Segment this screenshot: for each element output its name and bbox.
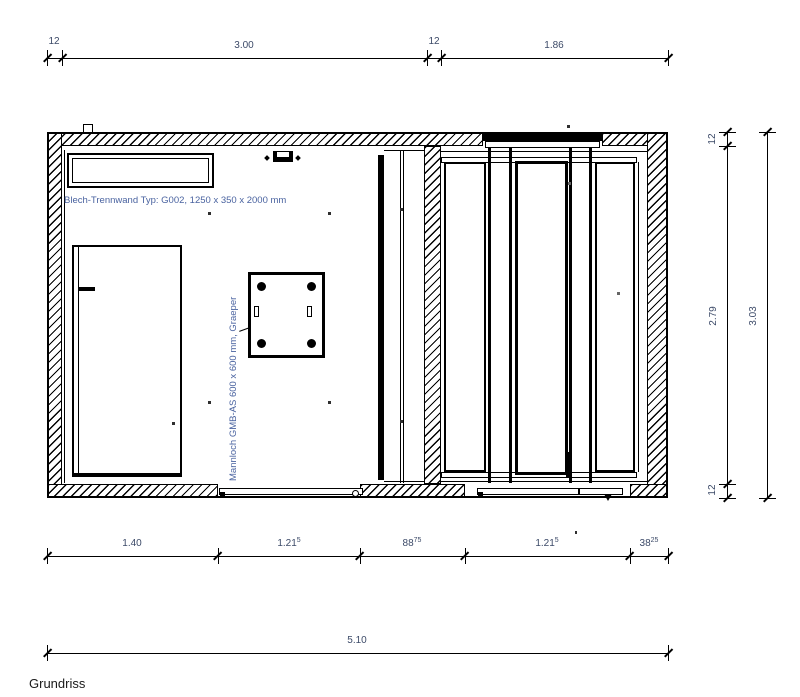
dim-label-top-partition: 12 <box>428 37 439 47</box>
top-opening-black-bar <box>483 134 602 141</box>
middle-black-partition <box>378 155 384 480</box>
manhole-hinge-left <box>254 306 259 317</box>
manhole-bolt-top-right <box>307 282 316 291</box>
right-room-bottom-line <box>441 481 647 482</box>
drill-dot <box>328 212 331 215</box>
dim-sup: 25 <box>651 537 659 544</box>
rack-column-b <box>569 148 592 483</box>
drill-dot <box>172 422 175 425</box>
panel-1 <box>444 162 486 472</box>
ceiling-bracket-notch <box>277 152 289 157</box>
dim-sup: 5 <box>297 537 301 544</box>
dim-tick <box>664 53 673 62</box>
roof-stub-square <box>83 124 93 133</box>
dim-label-bottom-5: 3825 <box>640 537 659 549</box>
middle-duct-line-1 <box>400 150 401 483</box>
rack-column-a <box>488 148 512 483</box>
bottom-door-right-tick <box>578 489 580 495</box>
dim-label-bottom-2: 1.215 <box>277 537 300 549</box>
manhole-bolt-bottom-right <box>307 339 316 348</box>
drill-dot <box>567 125 570 128</box>
dim-label-right-wall-bottom: 12 <box>708 484 718 495</box>
drawing-title: Grundriss <box>29 676 85 691</box>
bottom-door-left-pivot <box>352 490 359 497</box>
wall-cabinet-inner <box>72 158 209 183</box>
middle-duct-line-2 <box>403 150 404 483</box>
bottom-door-bar-left <box>219 488 363 495</box>
drill-dot <box>208 401 211 404</box>
dim-sup: 75 <box>414 537 422 544</box>
dim-tick <box>664 551 673 560</box>
middle-duct-cap-bottom <box>384 481 424 482</box>
manhole-bolt-bottom-left <box>257 339 266 348</box>
dim-label-top-room-left: 3.00 <box>234 41 253 51</box>
top-dim-line <box>47 58 668 59</box>
drill-dot <box>617 292 620 295</box>
dim-main: 1.40 <box>122 538 141 549</box>
bottom-door-right-handle <box>478 492 483 497</box>
dim-label-right-wall-top: 12 <box>708 133 718 144</box>
drill-dot <box>328 401 331 404</box>
overall-dim-line <box>47 653 668 654</box>
panel-3-edge-line <box>638 162 639 472</box>
dim-main: 1.21 <box>277 538 296 549</box>
dim-sup: 5 <box>555 537 559 544</box>
dim-label-overall-width: 5.10 <box>347 636 366 646</box>
floor-plan-canvas: Blech-Trennwand Typ: G002, 1250 x 350 x … <box>0 0 800 697</box>
equipment-rect <box>72 245 182 477</box>
right-dim-line-inner <box>727 132 728 498</box>
dim-tick <box>664 648 673 657</box>
equipment-wall-tick <box>78 287 95 291</box>
dim-label-right-room: 2.79 <box>709 306 719 325</box>
right-dim-line-outer <box>767 132 768 498</box>
manhole-hinge-right <box>307 306 312 317</box>
dim-main: 38 <box>640 538 651 549</box>
drill-dot <box>568 182 571 185</box>
stray-mark <box>575 531 577 534</box>
panel-3 <box>595 162 635 472</box>
panel-2 <box>515 161 568 475</box>
dim-main: 1.21 <box>535 538 554 549</box>
dim-label-top-wall-left: 12 <box>48 37 59 47</box>
trennwand-annotation: Blech-Trennwand Typ: G002, 1250 x 350 x … <box>64 196 286 206</box>
equipment-rect-inner-line <box>78 247 79 475</box>
dim-label-top-room-right: 1.86 <box>544 41 563 51</box>
bottom-door-arrow <box>604 494 612 501</box>
dim-label-bottom-4: 1.215 <box>535 537 558 549</box>
top-opening-frame <box>485 141 600 148</box>
column-b-tick <box>566 452 569 477</box>
drill-dot <box>400 420 403 423</box>
bottom-door-bar-right <box>477 488 623 495</box>
bottom-door-left-handle <box>220 492 225 497</box>
dim-label-right-overall: 3.03 <box>749 306 759 325</box>
dim-label-bottom-1: 1.40 <box>122 537 141 549</box>
right-room-top-line <box>441 151 647 152</box>
middle-duct-cap-top <box>384 150 424 151</box>
manhole-bolt-top-left <box>257 282 266 291</box>
dim-main: 88 <box>403 538 414 549</box>
mannloch-annotation: Mannloch GMB-AS 600 x 600 mm, Graeper <box>229 297 239 481</box>
drill-dot <box>400 208 403 211</box>
dim-label-bottom-3: 8875 <box>403 537 422 549</box>
drill-dot <box>208 212 211 215</box>
